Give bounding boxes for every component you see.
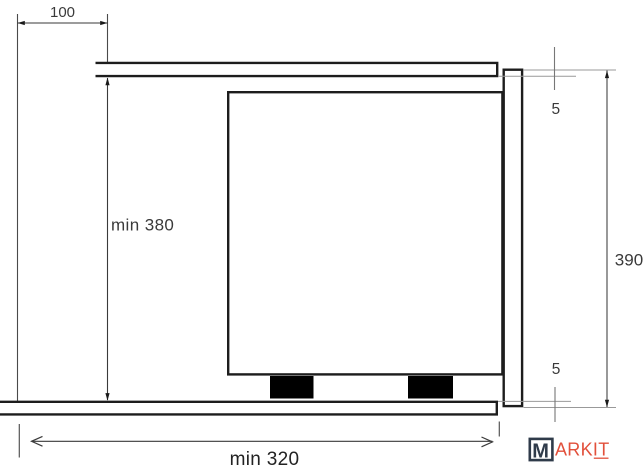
svg-text:5: 5	[551, 101, 560, 118]
svg-text:100: 100	[50, 4, 75, 21]
svg-text:min 380: min 380	[111, 216, 174, 235]
svg-text:M: M	[532, 440, 549, 462]
svg-text:5: 5	[552, 361, 561, 378]
svg-text:min 320: min 320	[230, 449, 300, 470]
svg-text:ARKIT: ARKIT	[555, 440, 610, 460]
svg-text:390: 390	[615, 251, 643, 270]
